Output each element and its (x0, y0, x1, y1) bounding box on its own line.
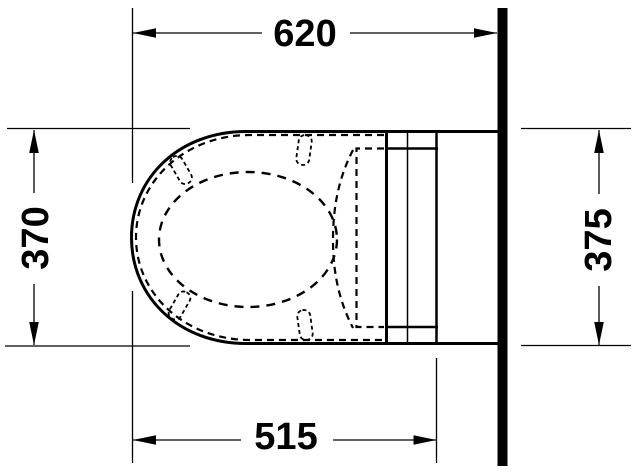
bowl-opening-ellipse (159, 172, 337, 307)
wall-section-bar (498, 8, 508, 466)
seat-bumper-top-left (168, 154, 194, 186)
dim-left-arrow-bottom (29, 322, 39, 345)
technical-drawing-canvas: 620 370 375 515 (0, 0, 634, 476)
dim-top-arrow-right (474, 28, 497, 38)
dim-left-arrow-top (29, 130, 39, 153)
dim-top-label: 620 (273, 13, 336, 55)
seat-bumper-top-center (295, 134, 312, 166)
dim-bottom-arrow-left (133, 435, 156, 445)
dim-top-arrow-left (133, 28, 156, 38)
extension-lines (5, 8, 631, 463)
dim-right-arrow-top (594, 130, 604, 153)
seat-bumper-bottom-center (296, 309, 313, 341)
dim-bottom-arrow-right (414, 435, 437, 445)
dim-left-label: 370 (15, 206, 57, 269)
dim-bottom-label: 515 (254, 416, 317, 458)
hinge-plate-dashed (357, 149, 385, 328)
dim-right-label: 375 (578, 208, 620, 271)
toilet-body-outline (132, 132, 498, 344)
dim-right-arrow-bottom (594, 322, 604, 345)
toilet-plan-drawing: 620 370 375 515 (0, 0, 634, 476)
seat-taper-curve (333, 150, 353, 328)
